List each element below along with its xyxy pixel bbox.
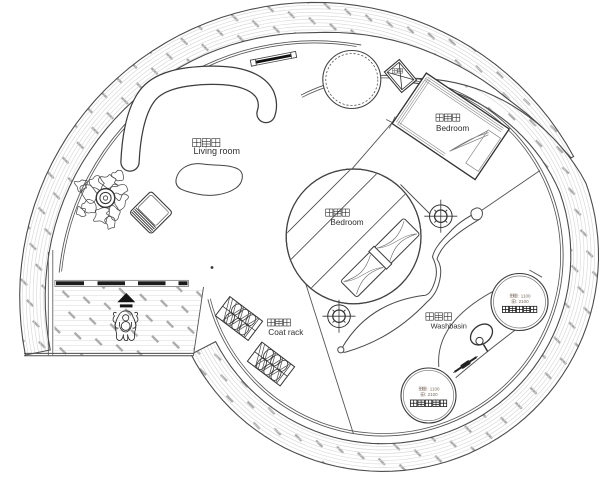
svg-text:Living room: Living room bbox=[194, 146, 241, 156]
svg-text:: 1100: : 1100 bbox=[427, 386, 440, 391]
svg-text:: 2100: : 2100 bbox=[425, 392, 438, 397]
svg-text:: 2100: : 2100 bbox=[516, 299, 529, 304]
svg-text:Bedroom: Bedroom bbox=[436, 124, 469, 133]
svg-text:: 1100: : 1100 bbox=[518, 293, 531, 298]
svg-text:Washbasin: Washbasin bbox=[431, 321, 467, 330]
svg-text:Coat rack: Coat rack bbox=[268, 328, 304, 337]
svg-text:Bedroom: Bedroom bbox=[330, 218, 363, 227]
